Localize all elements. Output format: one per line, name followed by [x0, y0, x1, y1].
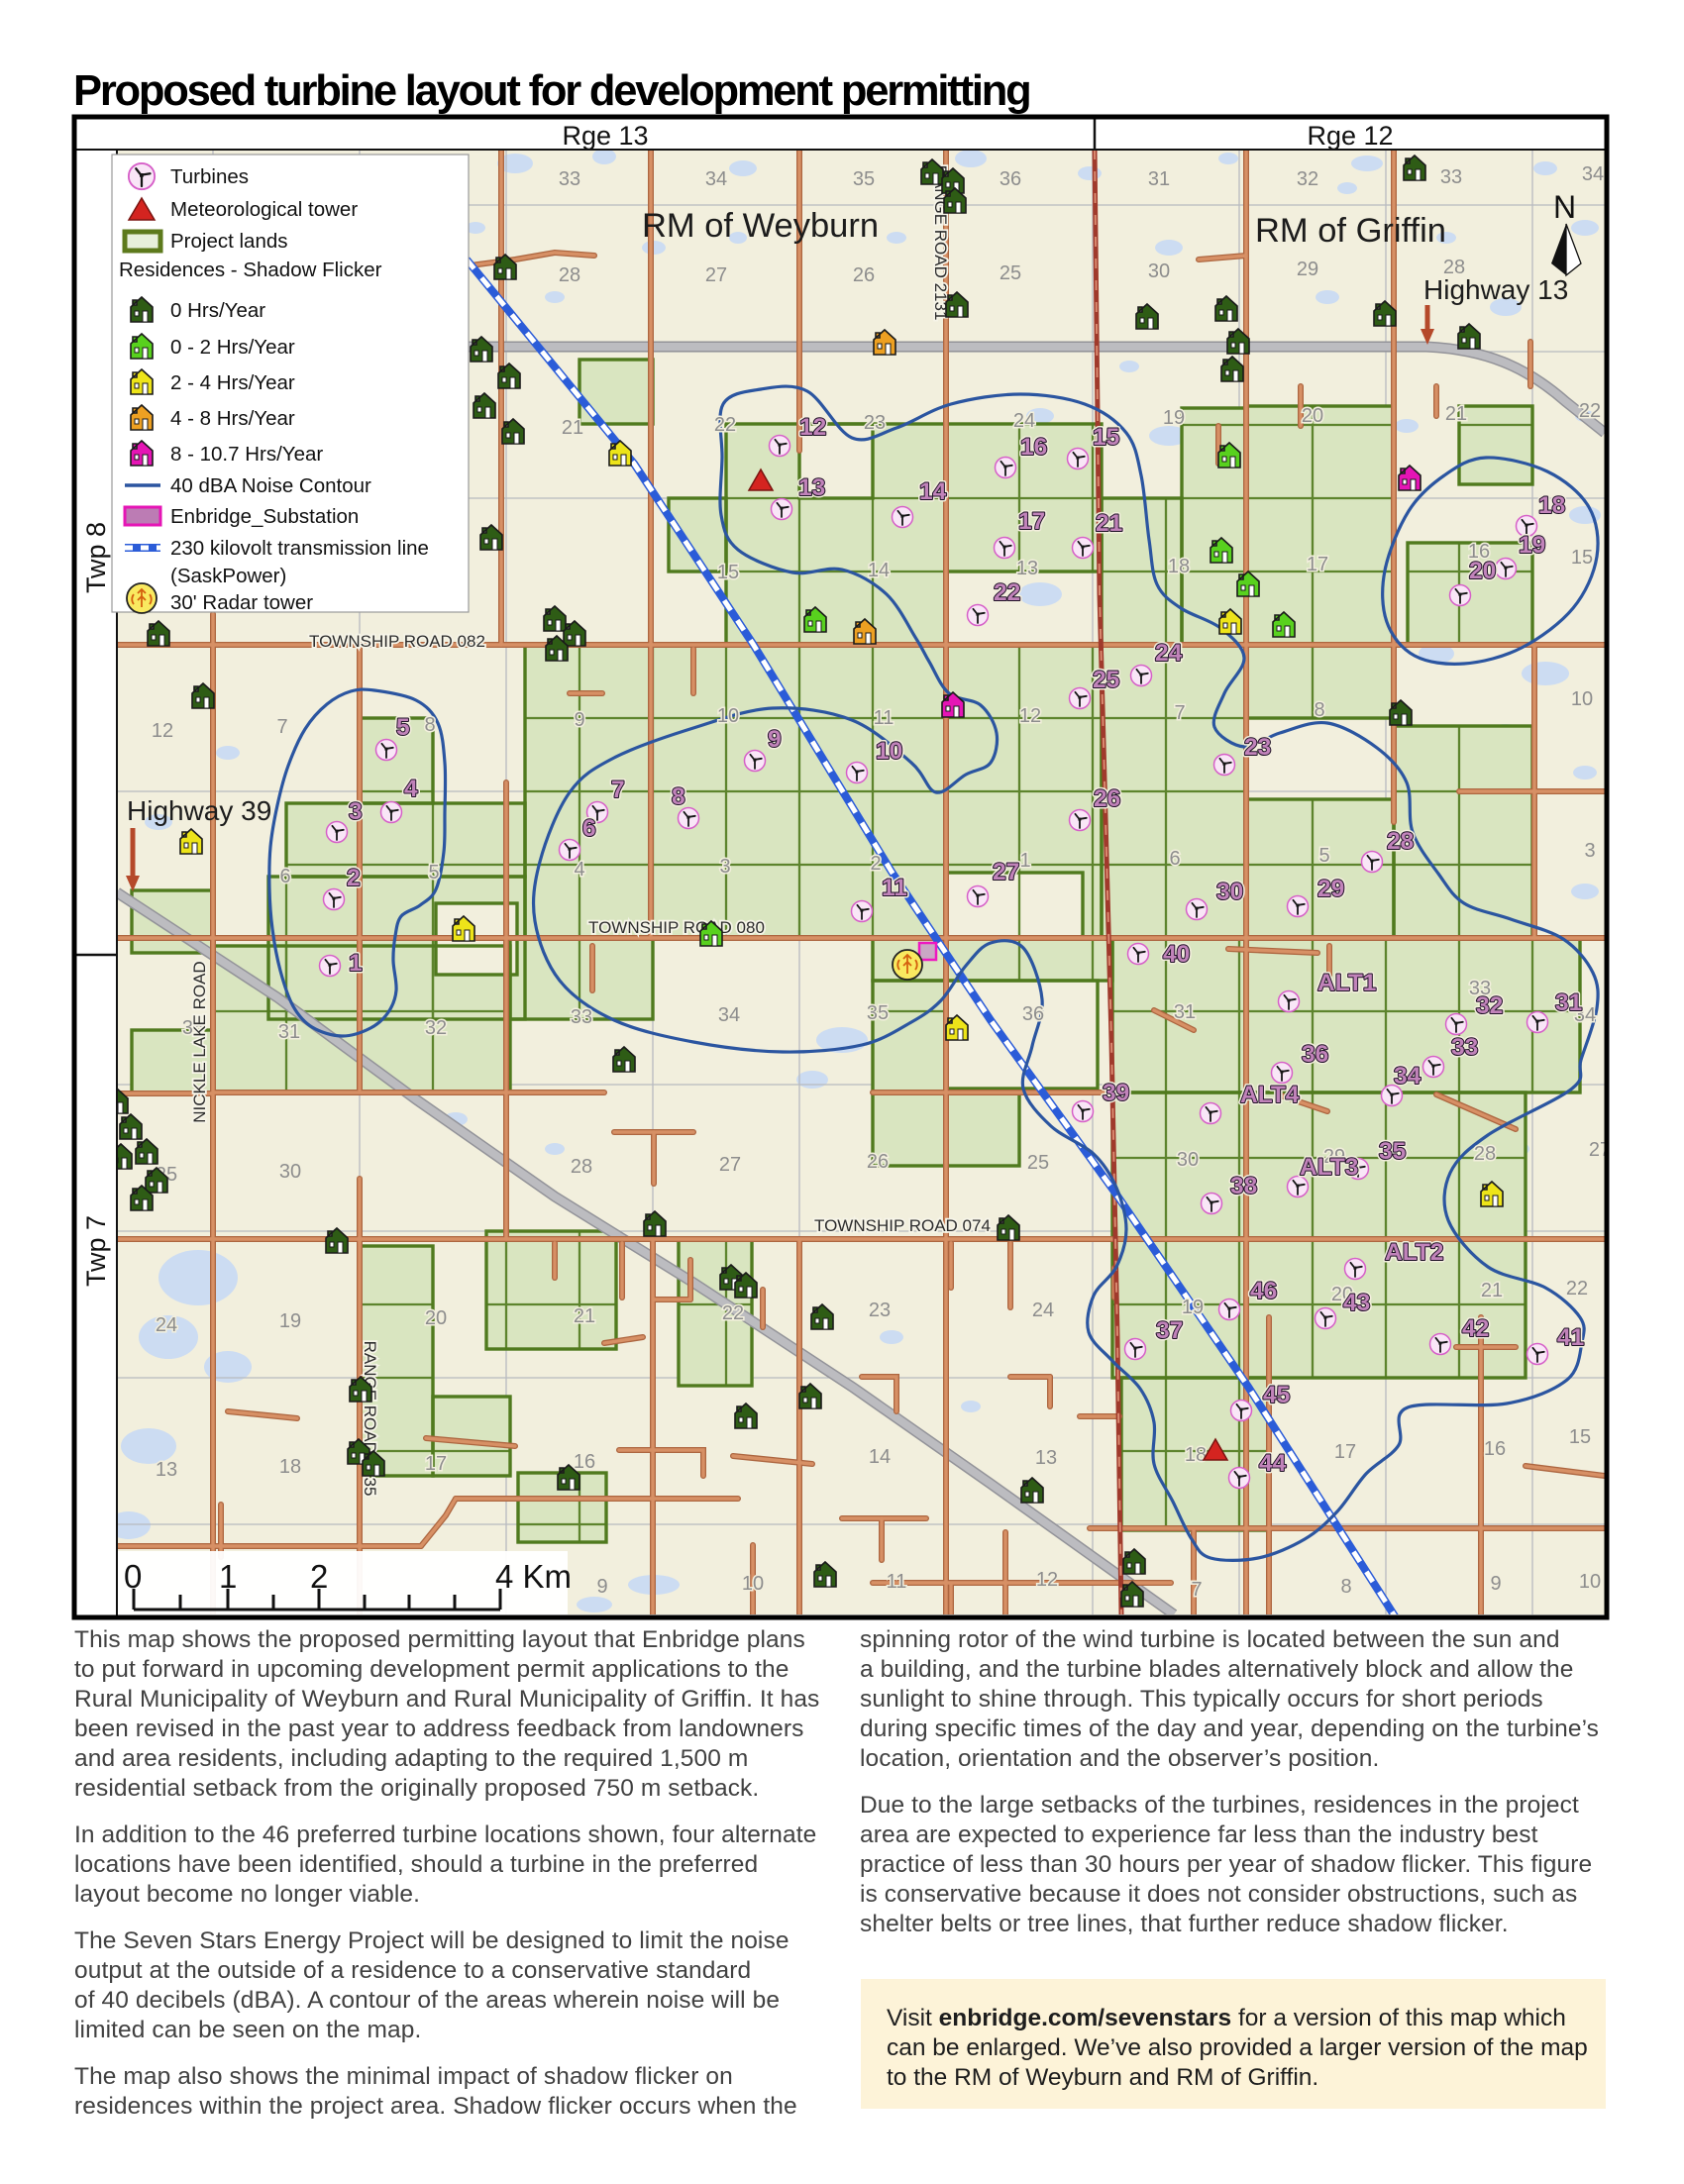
svg-text:29: 29: [1297, 259, 1318, 280]
svg-text:Proposed turbine layout for de: Proposed turbine layout for development …: [73, 67, 1030, 115]
svg-text:5: 5: [396, 714, 410, 741]
svg-text:32: 32: [425, 1017, 447, 1039]
svg-text:36: 36: [1000, 168, 1021, 190]
svg-text:ALT3: ALT3: [1300, 1154, 1358, 1181]
svg-text:31: 31: [1174, 1001, 1196, 1023]
svg-text:28: 28: [1474, 1143, 1496, 1165]
svg-text:2: 2: [870, 853, 881, 875]
svg-text:RM of Weyburn: RM of Weyburn: [642, 207, 879, 245]
svg-text:21: 21: [1481, 1280, 1503, 1301]
svg-text:23: 23: [864, 412, 886, 434]
svg-text:(SaskPower): (SaskPower): [170, 565, 286, 587]
svg-text:20: 20: [1469, 558, 1496, 584]
svg-text:4: 4: [574, 859, 584, 881]
svg-text:39: 39: [1103, 1080, 1129, 1106]
svg-text:21: 21: [1445, 403, 1467, 425]
svg-text:Meteorological tower: Meteorological tower: [170, 198, 358, 221]
svg-text:40: 40: [1163, 941, 1190, 968]
svg-text:6: 6: [582, 815, 596, 842]
svg-text:27: 27: [719, 1154, 741, 1176]
svg-text:24: 24: [156, 1314, 177, 1336]
svg-text:17: 17: [1334, 1441, 1356, 1463]
svg-text:21: 21: [562, 417, 583, 439]
svg-text:14: 14: [869, 1446, 891, 1468]
svg-text:10: 10: [742, 1573, 764, 1595]
svg-text:9: 9: [574, 709, 584, 731]
svg-text:NICKLE LAKE ROAD: NICKLE LAKE ROAD: [190, 961, 209, 1122]
svg-text:7: 7: [1191, 1579, 1202, 1601]
svg-text:TOWNSHIP ROAD 082: TOWNSHIP ROAD 082: [309, 632, 485, 651]
svg-text:22: 22: [722, 1302, 744, 1324]
svg-text:9: 9: [1490, 1573, 1501, 1595]
svg-text:32: 32: [1297, 168, 1318, 190]
svg-text:7: 7: [1174, 702, 1185, 724]
svg-text:0 Hrs/Year: 0 Hrs/Year: [170, 299, 265, 322]
svg-text:11: 11: [887, 1571, 907, 1593]
svg-text:Project lands: Project lands: [170, 230, 288, 253]
svg-text:33: 33: [1451, 1034, 1478, 1061]
svg-text:8: 8: [1340, 1576, 1351, 1598]
svg-text:ALT2: ALT2: [1385, 1239, 1443, 1266]
svg-text:7: 7: [276, 716, 287, 738]
svg-text:31: 31: [1555, 989, 1582, 1016]
svg-text:34: 34: [705, 168, 727, 190]
svg-text:8: 8: [1314, 699, 1324, 721]
svg-text:12: 12: [1019, 705, 1041, 727]
svg-text:31: 31: [1148, 168, 1170, 190]
svg-text:6: 6: [1169, 848, 1180, 870]
svg-text:TOWNSHIP ROAD 080: TOWNSHIP ROAD 080: [588, 918, 765, 937]
svg-text:33: 33: [571, 1006, 592, 1028]
svg-text:33: 33: [1440, 166, 1462, 188]
svg-text:2: 2: [347, 865, 361, 891]
svg-text:22: 22: [1566, 1278, 1588, 1300]
svg-text:Twp 7: Twp 7: [81, 1215, 111, 1287]
svg-text:16: 16: [1020, 434, 1047, 461]
svg-text:26: 26: [853, 264, 875, 286]
svg-text:TOWNSHIP ROAD 074: TOWNSHIP ROAD 074: [814, 1216, 991, 1235]
svg-text:4 - 8 Hrs/Year: 4 - 8 Hrs/Year: [170, 407, 295, 430]
svg-text:27: 27: [993, 859, 1019, 885]
svg-text:9: 9: [768, 726, 782, 753]
svg-text:15: 15: [717, 562, 739, 583]
svg-text:30' Radar tower: 30' Radar tower: [170, 591, 313, 614]
svg-text:Rge 12: Rge 12: [1307, 121, 1393, 151]
svg-text:17: 17: [425, 1453, 447, 1475]
svg-text:10: 10: [876, 738, 902, 765]
svg-text:18: 18: [1538, 492, 1565, 519]
svg-text:17: 17: [1307, 554, 1328, 575]
svg-text:41: 41: [1557, 1324, 1584, 1351]
svg-text:40 dBA Noise Contour: 40 dBA Noise Contour: [170, 474, 371, 497]
svg-text:27: 27: [705, 264, 727, 286]
svg-text:12: 12: [152, 720, 173, 742]
svg-text:28: 28: [1387, 828, 1414, 855]
svg-text:4 Km: 4 Km: [495, 1558, 572, 1595]
svg-text:19: 19: [1182, 1297, 1204, 1318]
svg-text:38: 38: [1230, 1173, 1257, 1199]
svg-text:8: 8: [424, 714, 435, 736]
svg-text:13: 13: [798, 474, 825, 501]
svg-text:22: 22: [994, 579, 1020, 606]
svg-text:ALT4: ALT4: [1240, 1082, 1300, 1108]
svg-text:34: 34: [718, 1004, 740, 1026]
svg-text:8: 8: [672, 783, 685, 810]
svg-text:18: 18: [279, 1456, 301, 1478]
svg-text:30: 30: [1216, 879, 1243, 905]
svg-text:RM of Griffin: RM of Griffin: [1255, 212, 1446, 250]
svg-text:4: 4: [404, 776, 418, 802]
svg-text:21: 21: [1096, 510, 1122, 537]
svg-text:1: 1: [1019, 850, 1030, 872]
svg-text:24: 24: [1013, 410, 1035, 432]
svg-text:31: 31: [278, 1021, 300, 1043]
svg-text:28: 28: [559, 264, 580, 286]
svg-text:35: 35: [867, 1002, 889, 1024]
svg-text:36: 36: [1022, 1003, 1044, 1025]
svg-text:19: 19: [1519, 532, 1545, 559]
svg-text:21: 21: [574, 1305, 595, 1327]
svg-text:24: 24: [1032, 1300, 1054, 1321]
svg-text:23: 23: [1244, 734, 1271, 761]
svg-text:13: 13: [1016, 558, 1038, 579]
svg-text:2 - 4 Hrs/Year: 2 - 4 Hrs/Year: [170, 371, 295, 394]
svg-text:45: 45: [1263, 1382, 1290, 1408]
svg-text:17: 17: [1018, 508, 1045, 535]
svg-text:14: 14: [919, 478, 947, 505]
svg-text:0 - 2 Hrs/Year: 0 - 2 Hrs/Year: [170, 336, 295, 359]
svg-text:Turbines: Turbines: [170, 165, 249, 188]
svg-text:15: 15: [1569, 1426, 1591, 1448]
svg-text:36: 36: [1302, 1041, 1328, 1068]
svg-text:42: 42: [1462, 1315, 1489, 1342]
svg-text:230 kilovolt transmission line: 230 kilovolt transmission line: [170, 537, 429, 560]
svg-text:Highway 39: Highway 39: [127, 795, 271, 826]
svg-text:10: 10: [717, 705, 739, 727]
svg-text:5: 5: [428, 862, 439, 884]
svg-text:18: 18: [1185, 1444, 1207, 1466]
svg-text:43: 43: [1343, 1290, 1370, 1316]
svg-text:35: 35: [1379, 1138, 1406, 1165]
svg-text:6: 6: [279, 866, 290, 887]
svg-text:3: 3: [349, 798, 363, 825]
svg-text:22: 22: [1579, 400, 1601, 422]
svg-text:12: 12: [799, 414, 826, 441]
svg-text:5: 5: [1318, 845, 1329, 867]
svg-text:28: 28: [571, 1156, 592, 1178]
svg-text:23: 23: [869, 1300, 891, 1321]
svg-text:7: 7: [611, 777, 625, 803]
svg-text:30: 30: [1177, 1149, 1199, 1171]
svg-text:ALT1: ALT1: [1317, 970, 1376, 996]
svg-text:25: 25: [1027, 1152, 1049, 1174]
svg-text:12: 12: [1036, 1569, 1058, 1591]
svg-text:15: 15: [1571, 547, 1593, 569]
svg-text:16: 16: [1484, 1438, 1506, 1460]
svg-text:9: 9: [596, 1576, 607, 1598]
svg-text:Rge 13: Rge 13: [562, 121, 648, 151]
svg-text:Highway 13: Highway 13: [1423, 274, 1568, 305]
svg-text:44: 44: [1259, 1450, 1287, 1477]
svg-text:19: 19: [279, 1310, 301, 1332]
svg-text:20: 20: [1302, 405, 1323, 427]
svg-text:46: 46: [1250, 1278, 1277, 1304]
svg-text:N: N: [1553, 189, 1576, 225]
svg-text:18: 18: [1168, 556, 1190, 577]
svg-text:11: 11: [882, 875, 907, 901]
svg-text:24: 24: [1155, 640, 1183, 667]
svg-text:35: 35: [853, 168, 875, 190]
svg-text:11: 11: [874, 707, 895, 729]
svg-text:26: 26: [867, 1151, 889, 1173]
svg-text:30: 30: [279, 1161, 301, 1183]
svg-text:33: 33: [559, 168, 580, 190]
svg-text:34: 34: [1394, 1063, 1421, 1090]
svg-text:10: 10: [1579, 1571, 1601, 1593]
svg-text:22: 22: [714, 414, 736, 436]
svg-text:19: 19: [1163, 407, 1185, 429]
svg-text:13: 13: [156, 1459, 177, 1481]
svg-text:25: 25: [1093, 667, 1119, 693]
svg-text:29: 29: [1317, 876, 1344, 902]
svg-text:16: 16: [574, 1451, 595, 1473]
svg-text:3: 3: [719, 856, 730, 878]
svg-text:26: 26: [1094, 785, 1120, 812]
svg-text:32: 32: [1476, 992, 1503, 1019]
svg-text:Twp 8: Twp 8: [81, 522, 111, 593]
svg-text:37: 37: [1156, 1317, 1183, 1344]
svg-text:30: 30: [1148, 260, 1170, 282]
svg-text:14: 14: [868, 560, 890, 581]
svg-text:Enbridge_Substation: Enbridge_Substation: [170, 505, 359, 528]
svg-text:20: 20: [425, 1307, 447, 1329]
svg-text:15: 15: [1093, 424, 1119, 451]
svg-text:3: 3: [1584, 840, 1595, 862]
svg-text:1: 1: [349, 950, 363, 977]
svg-text:25: 25: [1000, 262, 1021, 284]
svg-text:34: 34: [1582, 163, 1604, 185]
svg-text:10: 10: [1571, 688, 1593, 710]
svg-text:8 - 10.7 Hrs/Year: 8 - 10.7 Hrs/Year: [170, 443, 323, 466]
svg-text:Residences - Shadow Flicker: Residences - Shadow Flicker: [119, 259, 382, 281]
svg-text:13: 13: [1035, 1447, 1057, 1469]
